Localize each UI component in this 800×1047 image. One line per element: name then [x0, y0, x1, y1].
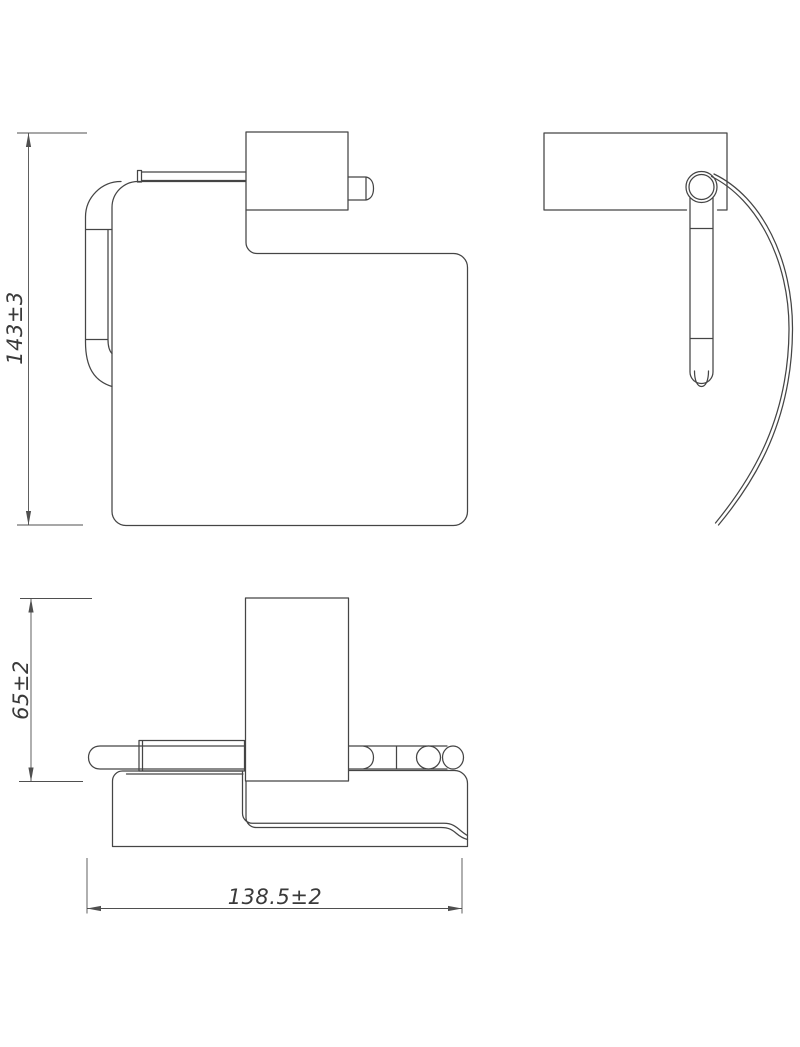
dim-height-lines	[17, 133, 87, 525]
side-view	[544, 133, 793, 525]
cover-bottom-outline	[113, 771, 468, 847]
dimensions: 143±3 65±2 138.5±2	[3, 133, 462, 914]
dim-arrow-left-icon	[87, 906, 101, 911]
spindle-end-knob	[443, 746, 464, 769]
dimension-width: 138.5±2	[87, 858, 462, 914]
pivot-ring-outer	[686, 172, 717, 203]
mount-bracket	[246, 132, 348, 210]
dimension-height: 143±3	[3, 133, 87, 525]
roll-arm-curve	[86, 182, 122, 387]
dim-arrow-right-icon	[448, 906, 462, 911]
paper-sheet-curve	[712, 174, 793, 525]
dim-depth-label: 65±2	[9, 660, 33, 720]
hanging-arm	[690, 198, 713, 387]
arm-mount-block	[139, 741, 245, 772]
roll-arm-bar	[138, 171, 247, 183]
dim-arrow-up-icon	[28, 599, 33, 613]
dim-height-label: 143±3	[3, 291, 27, 365]
bottom-view	[89, 598, 468, 847]
dim-arrow-down-icon	[26, 511, 31, 525]
dimension-depth: 65±2	[9, 599, 92, 782]
front-view	[86, 132, 468, 526]
spindle-bushing	[417, 746, 441, 769]
spindle-stub	[348, 177, 374, 200]
cover-outline	[112, 182, 468, 526]
technical-drawing: 143±3 65±2 138.5±2	[0, 0, 800, 1047]
dim-arrow-down-icon	[28, 768, 33, 782]
dim-arrow-up-icon	[26, 133, 31, 147]
bracket-bottom-view	[246, 598, 349, 781]
drawing-sheet: 143±3 65±2 138.5±2	[0, 0, 800, 1047]
dim-width-label: 138.5±2	[228, 885, 323, 909]
